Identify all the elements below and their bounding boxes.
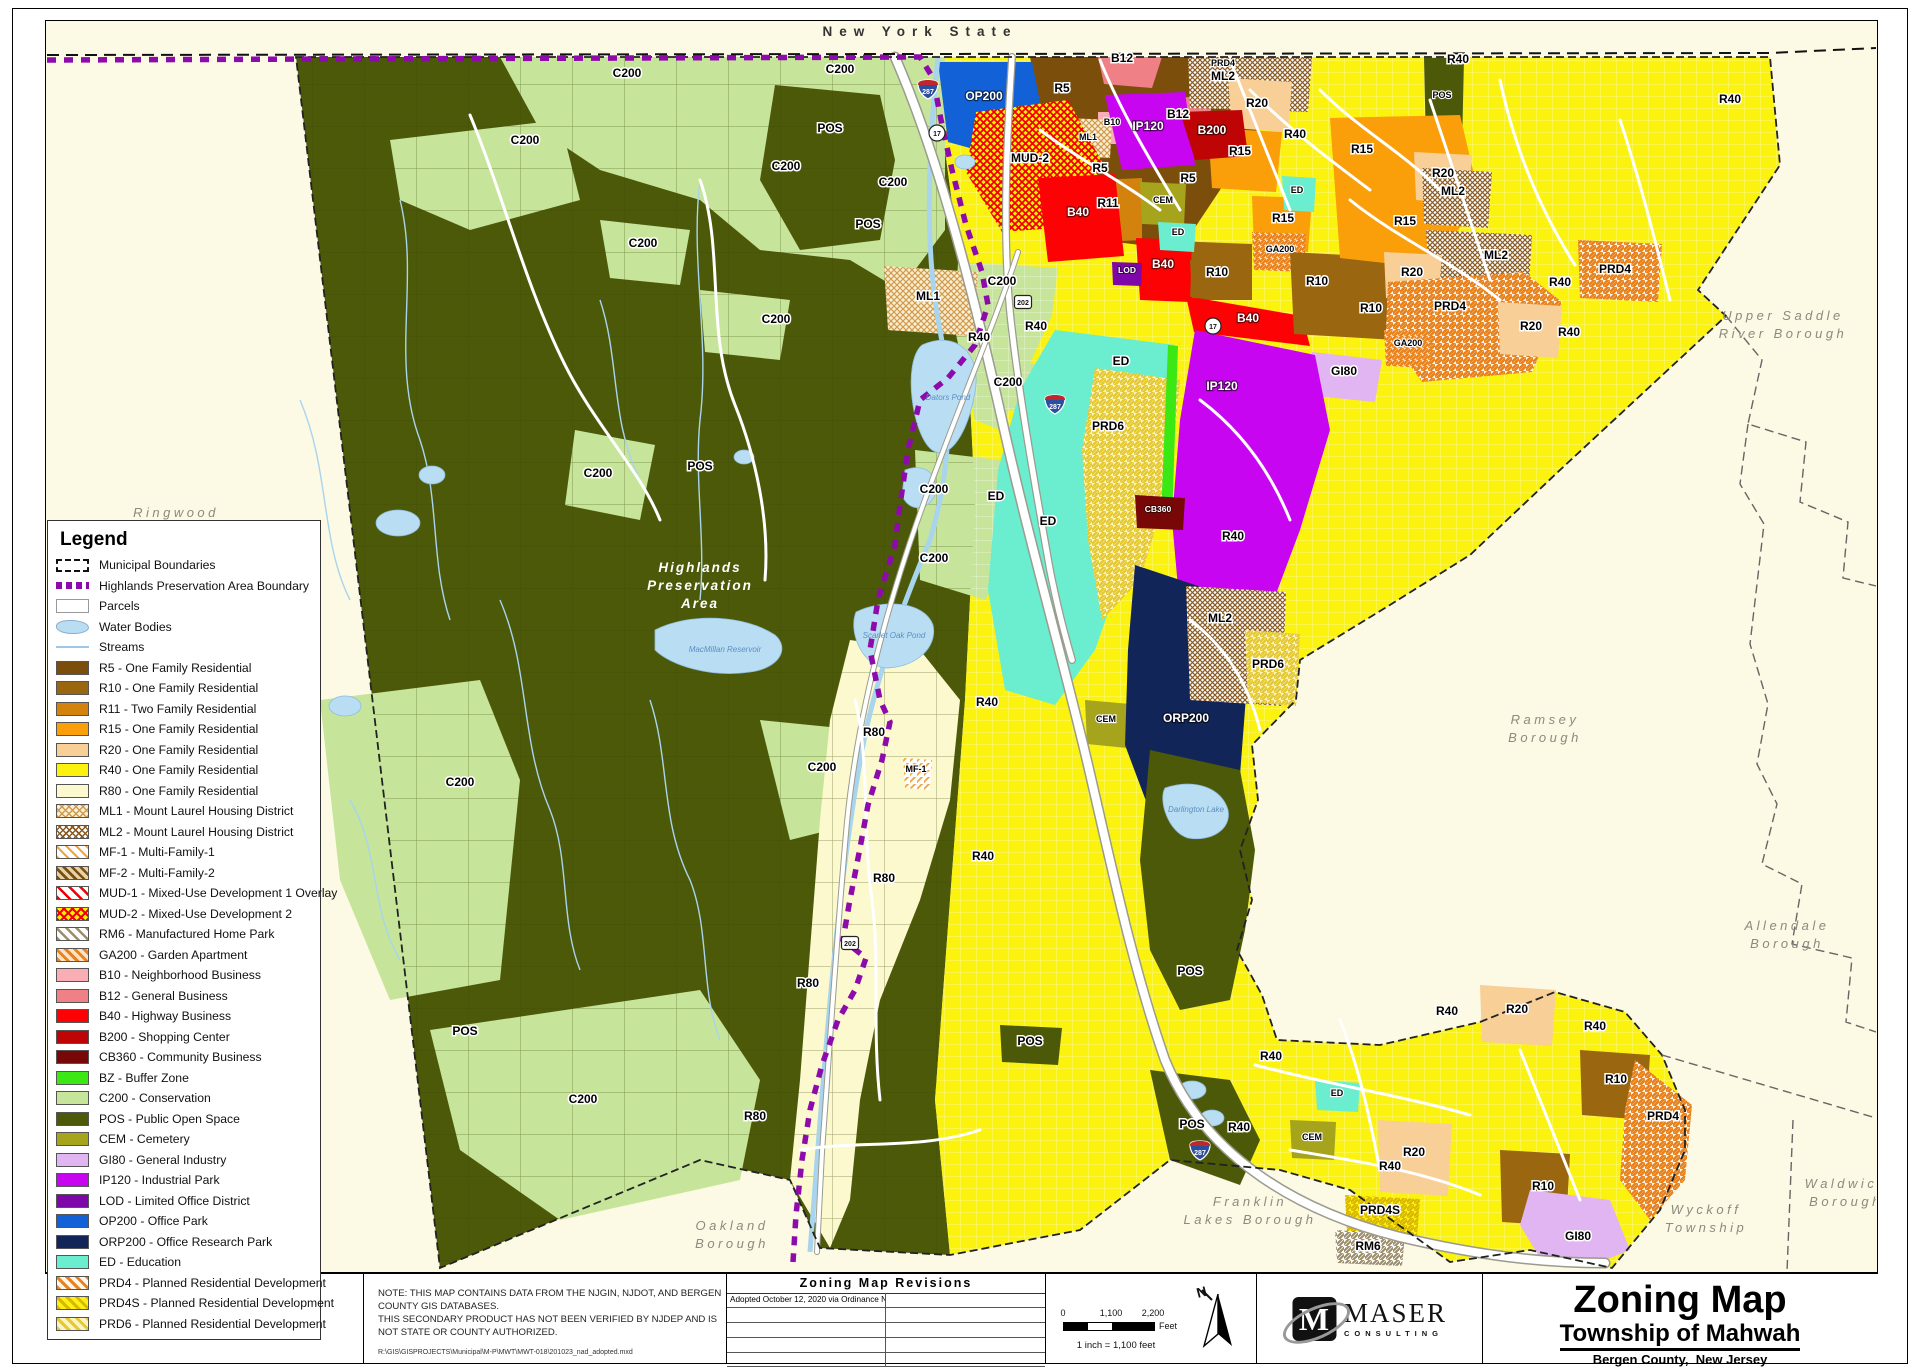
legend-item: CEM - Cemetery [48,1129,320,1150]
zoning-map-page: 2872872871717202202 New York StateRingwo… [0,0,1920,1371]
legend-swatch [56,968,89,982]
legend-swatch [56,825,89,839]
map-label: R20 [1520,319,1542,333]
legend-item: GI80 - General Industry [48,1150,320,1171]
legend-swatch [56,1255,89,1269]
legend-item: R11 - Two Family Residential [48,699,320,720]
map-label: Area [680,596,719,611]
legend-label: PRD6 - Planned Residential Development [99,1317,326,1331]
map-label: B12 [1167,107,1189,121]
legend-label: Water Bodies [99,620,172,634]
municipality-name: Township of Mahwah [1560,1321,1801,1351]
legend-label: BZ - Buffer Zone [99,1071,189,1085]
map-label: IP120 [1206,379,1238,393]
map-label: ORP200 [1163,711,1209,725]
revision-row [727,1353,1045,1368]
legend-swatch [56,620,89,634]
route-shield-c17: 17 [929,125,945,141]
map-label: ED [988,489,1005,503]
legend-label: Municipal Boundaries [99,558,216,572]
legend-item: Municipal Boundaries [48,555,320,576]
legend-item: MF-2 - Multi-Family-2 [48,863,320,884]
map-label: ML2 [1484,248,1508,262]
maser-logo: M MASER CONSULTING [1292,1297,1447,1341]
map-label: B12 [1111,51,1133,65]
svg-text:287: 287 [1194,1150,1206,1157]
legend-item: ORP200 - Office Research Park [48,1232,320,1253]
map-label: C200 [446,775,475,789]
legend-panel: Legend Municipal BoundariesHighlands Pre… [47,520,321,1340]
map-label: R20 [1246,96,1268,110]
map-label: Borough [695,1236,769,1251]
map-label: POS [1179,1117,1204,1131]
map-label: Preservation [647,578,753,593]
map-label: R5 [1054,81,1070,95]
logo-subtitle: CONSULTING [1344,1329,1447,1338]
scale-ratio: 1 inch = 1,100 feet [1046,1340,1186,1351]
legend-swatch [56,907,89,921]
legend-item: POS - Public Open Space [48,1109,320,1130]
legend-item: MUD-1 - Mixed-Use Development 1 Overlay [48,883,320,904]
map-label: C200 [613,66,642,80]
legend-item: Water Bodies [48,617,320,638]
map-label: CEM [1153,195,1173,205]
map-label: POS [1017,1034,1042,1048]
map-label: R40 [1228,1120,1250,1134]
legend-swatch [56,743,89,757]
legend-label: ED - Education [99,1255,181,1269]
map-label: ML2 [1441,184,1465,198]
legend-item: IP120 - Industrial Park [48,1170,320,1191]
legend-title: Legend [48,521,320,555]
legend-label: PRD4S - Planned Residential Development [99,1296,334,1310]
map-label: R40 [1379,1159,1401,1173]
scale-tick-0: 0 [1060,1308,1065,1318]
legend-item: B200 - Shopping Center [48,1027,320,1048]
legend-items: Municipal BoundariesHighlands Preservati… [48,555,320,1334]
map-title: Zoning Map [1483,1281,1877,1321]
revision-row [727,1323,1045,1338]
legend-swatch [56,1173,89,1187]
legend-label: LOD - Limited Office District [99,1194,250,1208]
svg-text:287: 287 [922,89,934,96]
map-label: POS [1177,964,1202,978]
map-label: Ringwood [133,505,219,520]
map-label: Dators Pond [926,393,971,402]
map-label: Ramsey [1511,712,1580,727]
map-label: ED [1113,354,1130,368]
logo-cell: M MASER CONSULTING [1256,1274,1482,1363]
legend-label: MF-1 - Multi-Family-1 [99,845,215,859]
legend-label: R15 - One Family Residential [99,722,258,736]
legend-label: POS - Public Open Space [99,1112,240,1126]
legend-label: R5 - One Family Residential [99,661,251,675]
map-label: ML2 [1208,611,1232,625]
legend-label: Streams [99,640,144,654]
map-label: Waldwick [1805,1176,1876,1191]
revisions-cell: Zoning Map Revisions Adopted October 12,… [726,1274,1045,1363]
map-label: PRD4 [1434,299,1466,313]
map-label: Highlands [658,560,741,575]
revision-row [727,1338,1045,1353]
map-label: B40 [1237,311,1259,325]
map-label: Franklin [1213,1194,1287,1209]
route-shield-s202: 202 [842,937,859,950]
map-label: R40 [1584,1019,1606,1033]
legend-swatch [56,866,89,880]
map-label: R10 [1360,301,1382,315]
map-label: POS [687,459,712,473]
legend-swatch [56,1112,89,1126]
legend-swatch [56,1317,89,1331]
svg-text:N: N [1195,1283,1209,1301]
legend-swatch [56,804,89,818]
legend-swatch [56,1296,89,1310]
legend-label: IP120 - Industrial Park [99,1173,220,1187]
map-label: POS [452,1024,477,1038]
map-label: R20 [1432,166,1454,180]
legend-label: C200 - Conservation [99,1091,211,1105]
map-label: R40 [1558,325,1580,339]
map-label: R40 [1549,275,1571,289]
maser-logo-icon: M [1292,1297,1336,1341]
map-label: GI80 [1331,364,1357,378]
legend-swatch [56,1050,89,1064]
legend-swatch [56,722,89,736]
legend-item: ED - Education [48,1252,320,1273]
map-label: GA200 [1266,244,1295,254]
legend-swatch [56,1153,89,1167]
legend-item: BZ - Buffer Zone [48,1068,320,1089]
legend-item: OP200 - Office Park [48,1211,320,1232]
map-label: ED [1291,185,1304,195]
legend-label: MUD-1 - Mixed-Use Development 1 Overlay [99,886,337,900]
map-label: CB360 [1145,504,1172,514]
county-state-line: Bergen County, New Jersey [1483,1352,1877,1367]
map-label: ML2 [1211,69,1235,83]
map-label: Borough [1750,936,1824,951]
legend-label: B12 - General Business [99,989,228,1003]
map-label: PRD6 [1252,657,1284,671]
legend-label: B10 - Neighborhood Business [99,968,261,982]
legend-swatch [56,599,89,613]
map-label: POS [1432,90,1451,100]
map-label: C200 [762,312,791,326]
map-label: C200 [920,551,949,565]
legend-label: ORP200 - Office Research Park [99,1235,272,1249]
legend-label: R11 - Two Family Residential [99,702,256,716]
legend-label: Parcels [99,599,140,613]
map-label: R80 [863,725,885,739]
map-label: ED [1040,514,1057,528]
legend-swatch [56,1132,89,1146]
map-label: R80 [797,976,819,990]
map-label: PRD4S [1360,1203,1400,1217]
map-note: NOTE: THIS MAP CONTAINS DATA FROM THE NJ… [378,1288,726,1340]
legend-swatch [56,1030,89,1044]
legend-item: Highlands Preservation Area Boundary [48,576,320,597]
map-label: C200 [584,466,613,480]
legend-item: B10 - Neighborhood Business [48,965,320,986]
legend-swatch [56,582,89,589]
map-label: OP200 [965,89,1003,103]
note-line-2: THIS SECONDARY PRODUCT HAS NOT BEEN VERI… [378,1314,726,1340]
legend-item: LOD - Limited Office District [48,1191,320,1212]
map-label: Township [1665,1220,1747,1235]
legend-label: MF-2 - Multi-Family-2 [99,866,215,880]
map-label: Upper Saddle [1722,308,1844,323]
scale-bar [1063,1322,1155,1331]
map-label: Wyckoff [1671,1202,1742,1217]
map-label: Borough [1508,730,1582,745]
map-label: C200 [808,760,837,774]
map-label: MUD-2 [1011,151,1049,165]
map-label: R10 [1532,1179,1554,1193]
map-label: PRD4 [1599,262,1631,276]
legend-item: B12 - General Business [48,986,320,1007]
legend-item: R15 - One Family Residential [48,719,320,740]
map-label: ED [1172,227,1185,237]
map-label: R40 [1260,1049,1282,1063]
map-label: R5 [1092,161,1108,175]
map-label: Darlington Lake [1168,805,1225,814]
map-label: R40 [1222,529,1244,543]
map-label: B200 [1198,123,1227,137]
map-label: C200 [826,62,855,76]
revisions-title: Zoning Map Revisions [727,1274,1045,1294]
legend-item: R80 - One Family Residential [48,781,320,802]
legend-label: OP200 - Office Park [99,1214,208,1228]
map-label: POS [855,217,880,231]
map-label: R15 [1272,211,1294,225]
legend-item: PRD4S - Planned Residential Development [48,1293,320,1314]
map-label: RM6 [1355,1239,1381,1253]
legend-swatch [56,1276,89,1290]
legend-label: ML2 - Mount Laurel Housing District [99,825,293,839]
svg-text:202: 202 [1017,300,1029,307]
zoning-map-svg: 2872872871717202202 New York StateRingwo… [47,22,1876,1272]
legend-swatch [56,763,89,777]
svg-text:17: 17 [933,131,941,138]
legend-item: Streams [48,637,320,658]
svg-text:202: 202 [844,941,856,948]
svg-text:287: 287 [1049,404,1061,411]
map-label: C200 [629,236,658,250]
map-label: MF-1 [906,764,927,774]
legend-swatch [56,989,89,1003]
map-label: C200 [772,159,801,173]
legend-swatch [56,927,89,941]
map-label: R11 [1097,196,1119,210]
revision-row [727,1308,1045,1323]
map-label: Lakes Borough [1184,1212,1317,1227]
legend-label: PRD4 - Planned Residential Development [99,1276,326,1290]
map-label: GA200 [1394,338,1423,348]
legend-label: RM6 - Manufactured Home Park [99,927,274,941]
map-label: C200 [879,175,908,189]
legend-swatch [56,681,89,695]
note-cell: NOTE: THIS MAP CONTAINS DATA FROM THE NJ… [363,1274,726,1363]
legend-swatch [56,886,89,900]
map-label: PRD6 [1092,419,1124,433]
note-line-1: NOTE: THIS MAP CONTAINS DATA FROM THE NJ… [378,1288,726,1314]
title-block: Zoning Map Township of Mahwah Bergen Cou… [1482,1274,1877,1363]
legend-swatch [56,1194,89,1208]
map-label: R15 [1351,142,1373,156]
map-label: Allendale [1744,918,1830,933]
map-label: R40 [1436,1004,1458,1018]
map-label: LOD [1118,265,1136,275]
legend-label: R40 - One Family Residential [99,763,258,777]
legend-item: C200 - Conservation [48,1088,320,1109]
legend-item: Parcels [48,596,320,617]
legend-swatch [56,1214,89,1228]
legend-item: MUD-2 - Mixed-Use Development 2 [48,904,320,925]
route-shield-s202: 202 [1015,296,1032,309]
legend-label: B200 - Shopping Center [99,1030,230,1044]
legend-label: R10 - One Family Residential [99,681,258,695]
legend-item: ML2 - Mount Laurel Housing District [48,822,320,843]
map-label: River Borough [1719,326,1848,341]
legend-swatch [56,661,89,675]
map-label: IP120 [1132,119,1164,133]
map-label: R40 [1025,319,1047,333]
map-label: ML1 [916,289,940,303]
map-label: B40 [1067,205,1089,219]
scale-tick-1100: 1,100 [1100,1308,1123,1318]
route-shield-c17: 17 [1205,318,1221,334]
map-label: CEM [1096,714,1116,724]
map-label: R15 [1394,214,1416,228]
legend-item: PRD6 - Planned Residential Development [48,1314,320,1335]
legend-label: R80 - One Family Residential [99,784,258,798]
legend-swatch [56,1071,89,1085]
legend-label: B40 - Highway Business [99,1009,231,1023]
legend-swatch [56,1091,89,1105]
map-label: Borough [1809,1194,1876,1209]
legend-item: R5 - One Family Residential [48,658,320,679]
map-label: POS [817,121,842,135]
legend-label: CB360 - Community Business [99,1050,262,1064]
map-label: ML1 [1079,132,1097,142]
north-arrow-icon: N [1188,1280,1246,1360]
legend-item: R10 - One Family Residential [48,678,320,699]
map-label: B40 [1152,257,1174,271]
map-label: CEM [1302,1132,1322,1142]
map-label: C200 [511,133,540,147]
map-label: C200 [988,274,1017,288]
legend-swatch [56,640,89,654]
legend-swatch [56,1235,89,1249]
legend-item: MF-1 - Multi-Family-1 [48,842,320,863]
legend-swatch [56,784,89,798]
scale-tick-2200: 2,200 [1142,1308,1165,1318]
map-label: R40 [968,330,990,344]
legend-label: ML1 - Mount Laurel Housing District [99,804,293,818]
map-label: R40 [1447,52,1469,66]
map-label: PRD4 [1647,1109,1679,1123]
map-label: R20 [1506,1002,1528,1016]
map-label: ED [1331,1088,1344,1098]
legend-label: GA200 - Garden Apartment [99,948,247,962]
map-label: B10 [1104,117,1121,127]
map-label: C200 [569,1092,598,1106]
map-label: R20 [1401,265,1423,279]
map-label: R15 [1229,144,1251,158]
legend-item: RM6 - Manufactured Home Park [48,924,320,945]
map-label: R10 [1306,274,1328,288]
legend-swatch [56,845,89,859]
legend-item: ML1 - Mount Laurel Housing District [48,801,320,822]
legend-item: GA200 - Garden Apartment [48,945,320,966]
legend-label: R20 - One Family Residential [99,743,258,757]
scale-unit: Feet [1159,1321,1177,1331]
map-label: GI80 [1565,1229,1591,1243]
legend-item: R40 - One Family Residential [48,760,320,781]
file-path: R:\GIS\GISPROJECTS\Municipal\M-P\MWT\MWT… [378,1349,633,1356]
legend-item: B40 - Highway Business [48,1006,320,1027]
legend-item: R20 - One Family Residential [48,740,320,761]
scale-cell: 0 1,100 2,200 Feet 1 inch = 1,100 feet N [1045,1274,1256,1363]
revision-row: Adopted October 12, 2020 via Ordinance N… [727,1293,1045,1308]
map-label: Oakland [696,1218,769,1233]
svg-text:17: 17 [1209,324,1217,331]
legend-item: CB360 - Community Business [48,1047,320,1068]
map-label: MacMillan Reservoir [689,645,762,654]
map-label: R10 [1605,1072,1627,1086]
map-label: R40 [976,695,998,709]
logo-name: MASER [1344,1300,1447,1327]
legend-label: MUD-2 - Mixed-Use Development 2 [99,907,292,921]
map-label: R80 [744,1109,766,1123]
map-canvas: 2872872871717202202 New York StateRingwo… [47,22,1876,1272]
map-label: R20 [1403,1145,1425,1159]
map-label: C200 [994,375,1023,389]
legend-item: PRD4 - Planned Residential Development [48,1273,320,1294]
map-label: PRD4 [1211,58,1235,68]
legend-swatch [56,702,89,716]
map-label: R40 [972,849,994,863]
map-label: C200 [920,482,949,496]
map-label: R5 [1180,171,1196,185]
legend-label: Highlands Preservation Area Boundary [99,579,309,593]
map-label: R80 [873,871,895,885]
map-label: New York State [822,24,1017,39]
map-label: R40 [1719,92,1741,106]
map-label: Scarlet Oak Pond [863,631,926,640]
legend-label: CEM - Cemetery [99,1132,190,1146]
map-label: R40 [1284,127,1306,141]
revisions-table: Adopted October 12, 2020 via Ordinance N… [727,1293,1045,1363]
legend-swatch [56,559,89,572]
legend-label: GI80 - General Industry [99,1153,226,1167]
legend-swatch [56,1009,89,1023]
map-label: R10 [1206,265,1228,279]
legend-swatch [56,948,89,962]
